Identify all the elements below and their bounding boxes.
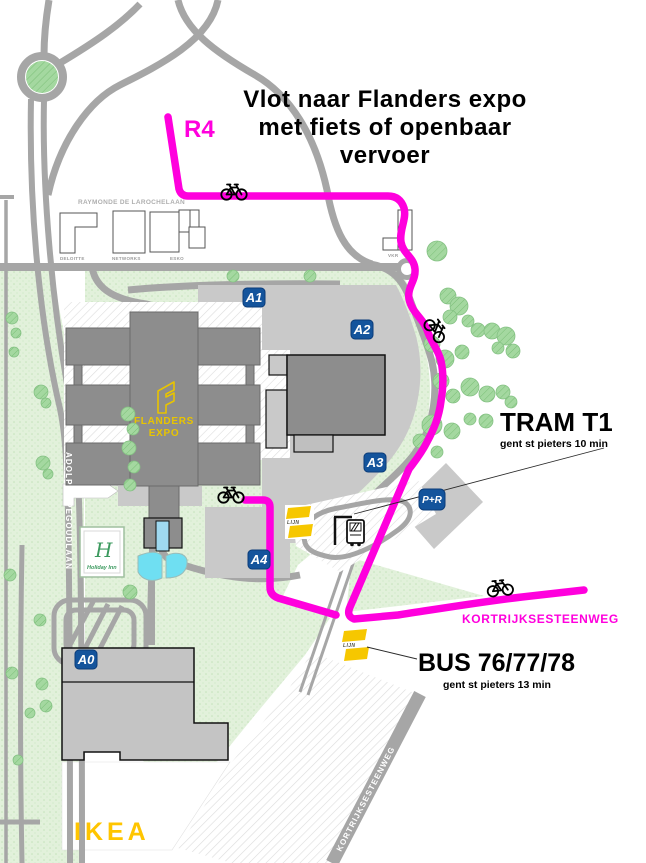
svg-text:A0: A0	[77, 652, 95, 667]
r4-route-label: R4	[184, 116, 215, 143]
networks-label: NETWORKS	[112, 256, 141, 261]
map-title-line2: met fiets of openbaar	[258, 114, 511, 141]
svg-text:A3: A3	[366, 455, 384, 470]
flanders-expo-label-line1: FLANDERS	[134, 416, 194, 427]
svg-text:A1: A1	[245, 290, 263, 305]
bus-label: BUS 76/77/78	[418, 649, 575, 677]
svg-text:LIJN: LIJN	[287, 520, 299, 526]
badge-a3: A3	[364, 453, 386, 472]
tram-detail: gent st pieters 10 min	[500, 438, 608, 450]
office-buildings: DELOITTE NETWORKS ESKO VKR	[60, 210, 412, 261]
svg-text:A2: A2	[353, 322, 371, 337]
esko-label: ESKO	[170, 256, 184, 261]
badge-a0: A0	[75, 650, 97, 669]
bus-pointer-line	[367, 647, 417, 659]
svg-text:A4: A4	[250, 552, 268, 567]
raymonde-street-label: RAYMONDE DE LAROCHELAAN	[78, 199, 185, 206]
entrance-corridor	[156, 521, 169, 551]
flanders-expo-label-line2: EXPO	[149, 428, 180, 439]
map-title-line1: Vlot naar Flanders expo	[243, 86, 527, 113]
bicycle-icon	[487, 579, 514, 597]
holiday-inn-initial: H	[94, 538, 113, 562]
delijn-stop-icon: LIJN	[285, 505, 314, 539]
badge-a2: A2	[351, 320, 373, 339]
badge-a4: A4	[248, 550, 270, 569]
svg-text:P+R: P+R	[422, 495, 443, 506]
svg-text:LIJN: LIJN	[343, 643, 355, 649]
delijn-stop-icon: LIJN	[341, 628, 370, 662]
roundabout-green-center	[26, 61, 58, 93]
holiday-inn: H Holiday Inn	[80, 527, 124, 577]
bus-detail: gent st pieters 13 min	[443, 679, 551, 691]
tram-label: TRAM T1	[500, 407, 613, 437]
adolphe-pegoudlaan-label: ADOLPHE PEGOUDLAAN	[64, 452, 73, 570]
vkr-label: VKR	[388, 253, 399, 258]
deloitte-label: DELOITTE	[60, 256, 85, 261]
flanders-expo-access-map: DELOITTE NETWORKS ESKO VKR FLANDERS EXPO	[0, 0, 646, 863]
kortrijksesteenweg-route-label: KORTRIJKSESTEENWEG	[462, 612, 619, 626]
badge-park-and-ride: P+R	[419, 489, 445, 510]
holiday-inn-label: Holiday Inn	[87, 565, 117, 571]
badge-a1: A1	[243, 288, 265, 307]
map-title-line3: vervoer	[340, 142, 430, 169]
ikea-label: IKEA	[74, 818, 150, 846]
